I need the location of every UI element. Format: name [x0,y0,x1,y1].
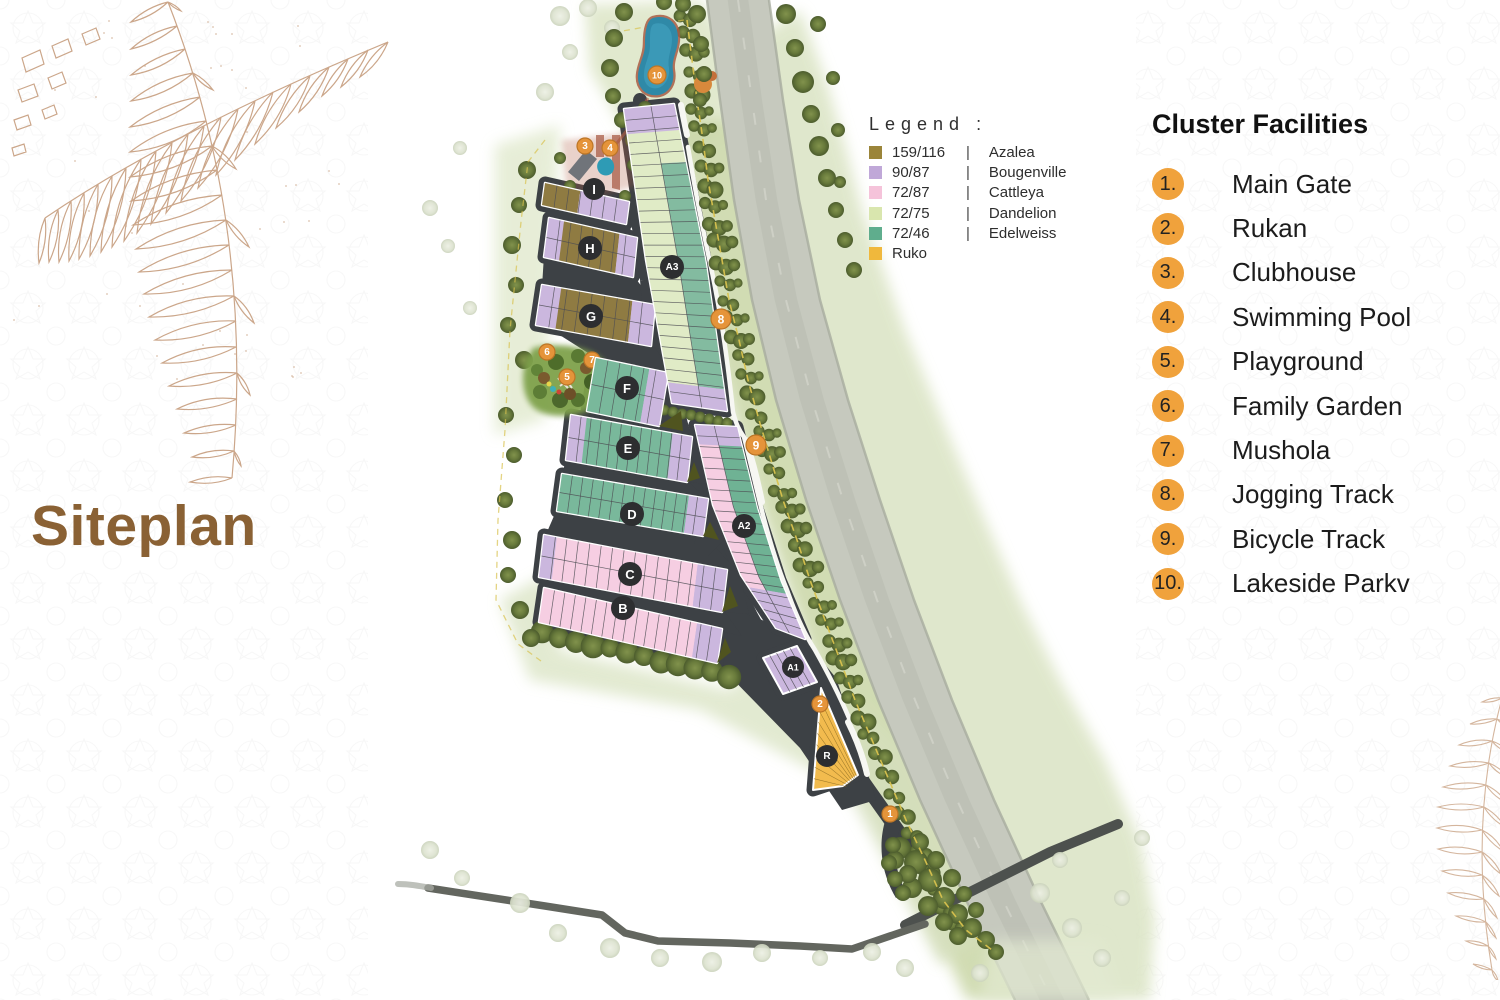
svg-text:G: G [586,309,596,324]
svg-text:2: 2 [817,699,823,710]
svg-text:3: 3 [582,141,588,152]
svg-text:8: 8 [718,313,725,327]
svg-text:R: R [823,751,831,762]
svg-text:9: 9 [753,439,760,453]
svg-text:A1: A1 [787,663,799,673]
svg-text:C: C [625,567,635,582]
svg-text:6: 6 [544,347,550,358]
svg-text:A3: A3 [666,262,679,273]
svg-text:F: F [623,381,631,396]
svg-text:4: 4 [607,143,613,154]
svg-text:1: 1 [887,809,893,820]
svg-text:I: I [592,182,596,197]
svg-text:H: H [585,241,594,256]
svg-text:D: D [627,507,636,522]
svg-text:E: E [624,441,633,456]
svg-text:5: 5 [564,372,570,383]
svg-text:A2: A2 [738,521,751,532]
svg-text:10: 10 [652,71,662,81]
svg-text:B: B [618,601,627,616]
